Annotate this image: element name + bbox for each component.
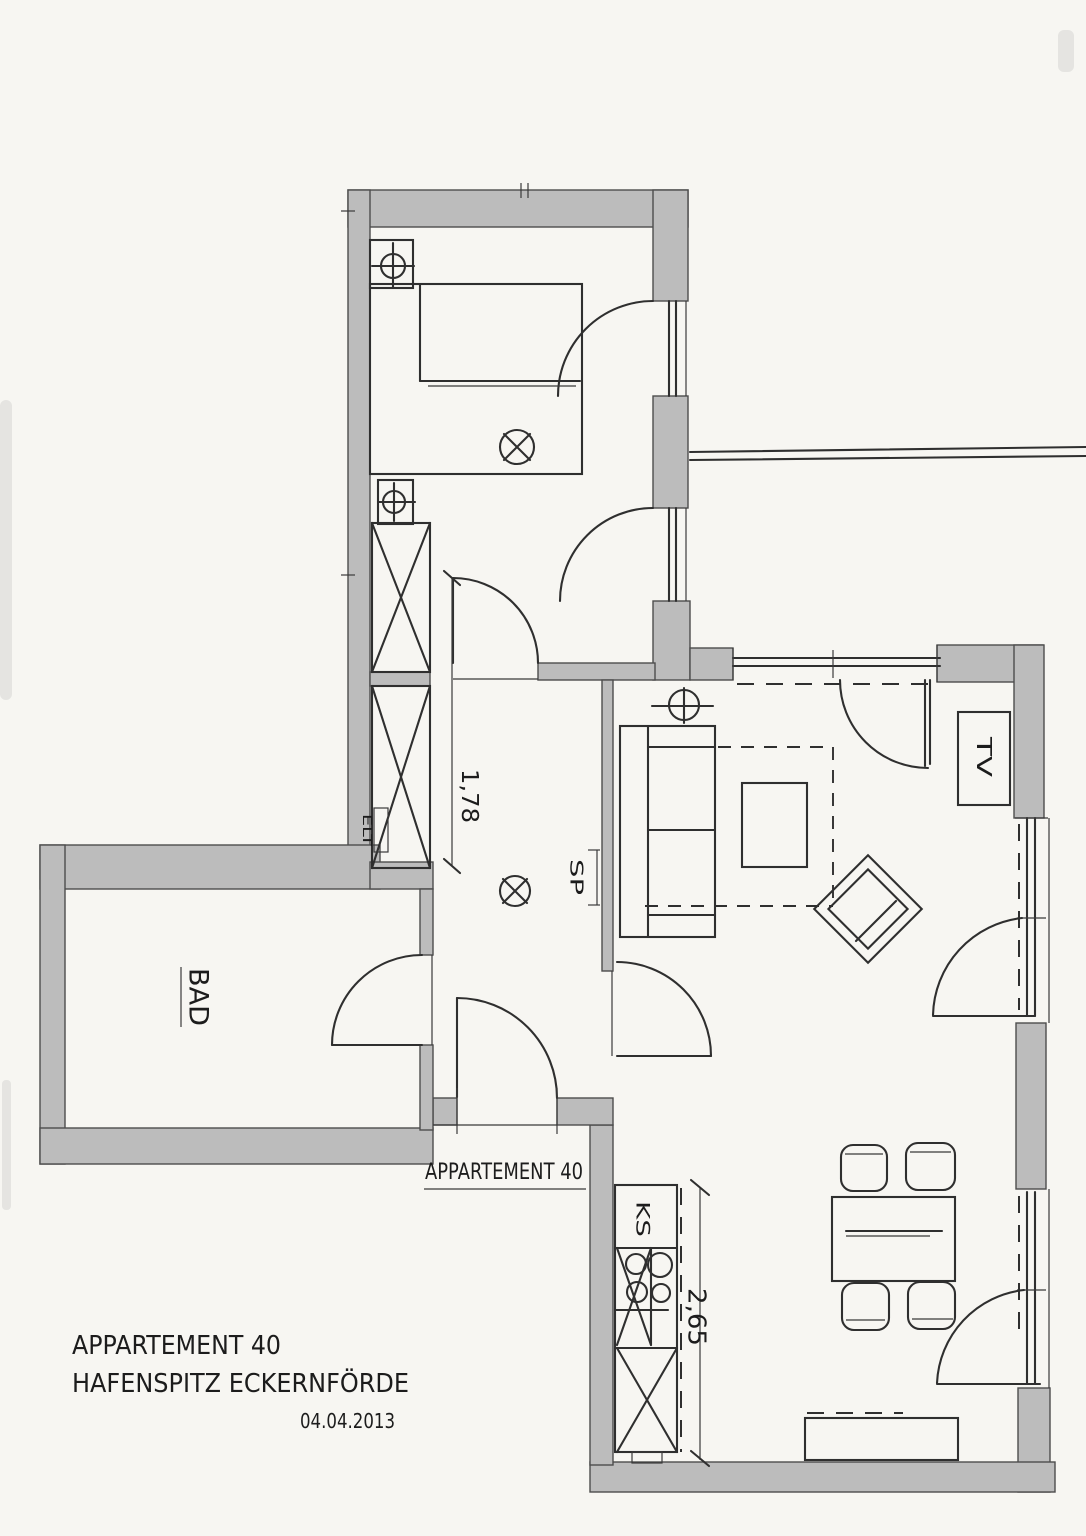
mirror-label: SP xyxy=(566,859,587,895)
label-dim-hallway: 1,78 xyxy=(456,769,482,823)
wall-lr-top-west xyxy=(690,648,733,680)
wall-bedroom-north xyxy=(348,190,688,227)
wall-kitchen-west xyxy=(590,1125,613,1465)
bathroom-room-label: BAD xyxy=(183,968,214,1026)
electrical-label: ELT xyxy=(360,814,374,847)
mirror-bracket xyxy=(588,850,600,905)
ceiling-light-livingroom xyxy=(652,688,713,723)
door-living-room xyxy=(617,962,711,1056)
door-bedroom-hall xyxy=(453,578,538,663)
coffee-table xyxy=(742,783,807,867)
wall-wardrobe-divider xyxy=(370,672,430,686)
ceiling-light-bedroom xyxy=(500,430,534,464)
wall-bath-east-upper xyxy=(420,889,433,955)
title-project: APPARTEMENT 40 xyxy=(72,1331,281,1361)
rug-outline xyxy=(645,747,833,906)
walls xyxy=(40,190,1055,1492)
floor-plan-page: BAD TV KS SP ELT 1,78 2,65 APPARTEMENT 4… xyxy=(0,0,1086,1536)
wall-west-long xyxy=(348,190,370,888)
bed xyxy=(370,284,582,474)
title-location: HAFENSPITZ ECKERNFÖRDE xyxy=(72,1367,409,1399)
wall-hall-livingroom xyxy=(602,680,613,971)
wall-bath-west xyxy=(40,845,65,1164)
window-east-lower xyxy=(1017,1192,1046,1384)
door-bedroom-lower xyxy=(560,508,676,601)
wall-bedroom-east-upper xyxy=(653,190,688,301)
wall-entry-jamb-east xyxy=(557,1098,613,1125)
window-east-upper xyxy=(1015,818,1048,1016)
armchair xyxy=(814,855,921,962)
ceiling-light-hallway xyxy=(500,876,530,906)
wall-east-upper xyxy=(1014,645,1044,818)
sideboard xyxy=(805,1413,958,1460)
floor-plan-drawing: BAD TV KS SP ELT 1,78 2,65 APPARTEMENT 4… xyxy=(0,0,1086,1536)
window-top xyxy=(733,645,940,684)
wardrobe-upper xyxy=(372,523,430,672)
wall-bedroom-east-mid xyxy=(653,396,688,508)
wall-entry-jamb-west xyxy=(433,1098,457,1125)
wall-bath-north xyxy=(40,845,380,889)
door-entrance xyxy=(457,998,557,1134)
label-tv: TV xyxy=(972,735,996,777)
title-block: APPARTEMENT 40 HAFENSPITZ ECKERNFÖRDE 04… xyxy=(72,1331,409,1433)
kitchen-dimension-text: 2,65 xyxy=(682,1288,711,1346)
wall-bath-east-lower xyxy=(420,1045,433,1130)
label-unit-door: APPARTEMENT 40 xyxy=(424,1160,586,1189)
label-mirror: SP xyxy=(566,859,587,895)
wall-bath-north-east xyxy=(370,862,433,889)
door-terrace-top xyxy=(840,680,930,768)
nightstand-bottom xyxy=(378,480,415,524)
wall-south xyxy=(590,1462,1055,1492)
wall-tee-column xyxy=(653,601,690,680)
fridge-label: KS xyxy=(631,1201,653,1237)
corridor-boundary-lines xyxy=(341,183,1086,1388)
wall-bedroom-south xyxy=(538,663,655,680)
door-bathroom xyxy=(332,955,422,1045)
label-electrical: ELT xyxy=(360,814,374,847)
door-balcony-lower xyxy=(937,1290,1040,1384)
hallway-dimension-text: 1,78 xyxy=(456,769,482,823)
wall-east-pier xyxy=(1016,1023,1046,1189)
tv-label: TV xyxy=(972,735,996,777)
label-fridge: KS xyxy=(631,1201,653,1237)
wardrobe-lower xyxy=(372,686,430,868)
title-date: 04.04.2013 xyxy=(300,1409,395,1433)
unit-door-label: APPARTEMENT 40 xyxy=(425,1160,583,1185)
wall-bath-south xyxy=(40,1128,433,1164)
dimension-hallway xyxy=(444,571,460,873)
nightstand-top xyxy=(370,240,414,288)
dining-table xyxy=(832,1197,955,1281)
label-dim-kitchen: 2,65 xyxy=(682,1288,711,1346)
label-bathroom: BAD xyxy=(181,967,214,1027)
